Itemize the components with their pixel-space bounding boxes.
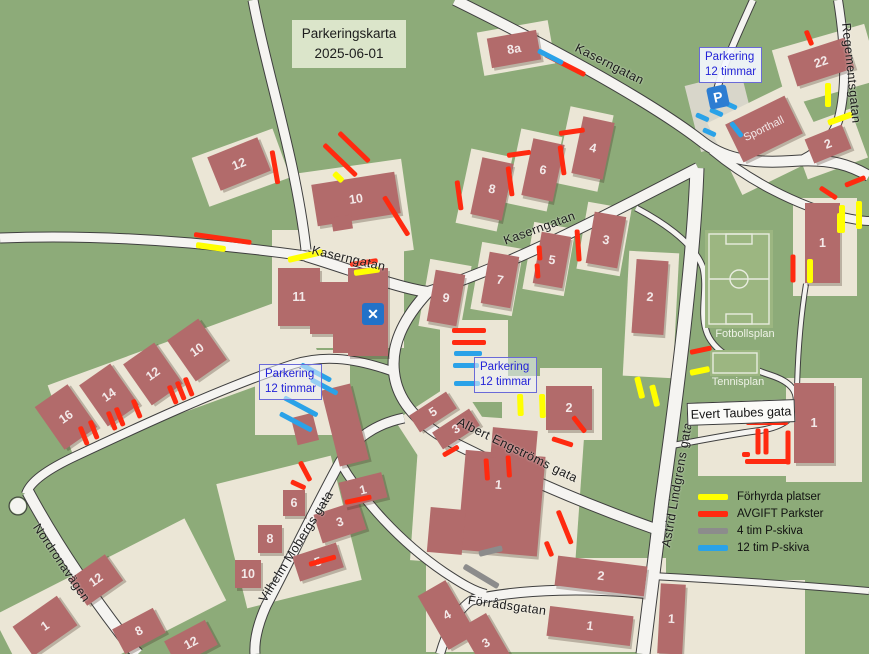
building-number: 3 [479,635,492,651]
building-number: 8a [506,41,522,57]
parking-marker-red [535,263,541,278]
building-number: 12 [230,155,248,173]
parking-marker-blue [454,351,482,356]
building-number: 4 [440,607,453,623]
map-title: Parkeringskarta 2025-06-01 [292,20,406,68]
parking-marker-yellow [856,201,862,229]
building: 6 [283,490,305,516]
building-number: 2 [822,136,834,152]
legend-row: 4 tim P-skiva [698,522,823,539]
street-label-evert-taubes-gata: Evert Taubes gata [687,399,796,426]
building-number: 1 [494,478,502,493]
building: 2 [631,259,668,335]
legend-label: 4 tim P-skiva [737,525,803,537]
building-number: 8 [267,532,274,546]
sports-fields-layer [705,230,773,376]
building-number: 6 [291,496,298,510]
parkering-line1: Parkering [265,367,316,382]
legend-label: Förhyrda platser [737,491,821,503]
legend-swatch-yellow [698,494,728,500]
building-number: 8 [487,181,497,196]
building-number: 1 [586,619,595,634]
parking-marker-yellow [517,394,524,416]
building-number: 9 [441,291,450,306]
parkering-line1: Parkering [705,50,756,65]
parkering-line2: 12 timmar [705,65,756,80]
building-number: 5 [426,404,439,420]
legend-row: AVGIFT Parkster [698,505,823,522]
building-number: 1 [811,416,818,430]
legend-swatch-gray [698,528,728,534]
building-number: 2 [566,401,573,415]
building-number: 2 [646,290,654,304]
parking-icon-glyph: P [712,88,724,106]
parking-marker-yellow [839,205,845,233]
parking-marker-yellow [825,83,831,107]
parking-marker-red [452,328,486,333]
legend-swatch-red [698,511,728,517]
parking-marker-red [756,429,761,455]
parkering-line2: 12 timmar [480,375,531,390]
building-number: 10 [348,191,364,207]
building [333,333,355,353]
building-number: 3 [335,514,346,529]
parkering-callout-west: Parkering 12 timmar [259,364,322,400]
building-number: 1 [38,618,52,633]
parking-marker-red [452,340,486,345]
building-number: 1 [668,612,676,626]
building-number: 4 [588,140,598,155]
legend-label: AVGIFT Parkster [737,508,823,520]
parking-map: 12 10 11 2 8a 8 6 4 9 7 5 3 2 2 5 3 1 6 … [0,0,869,654]
building-number: 3 [601,233,610,248]
parking-icon: P [706,84,730,110]
building-number: 11 [292,290,305,304]
building [427,507,466,555]
building-number: 8 [133,623,146,639]
parkering-line1: Parkering [480,360,531,375]
parking-marker-red [742,452,750,457]
building: 1 [794,383,834,463]
restaurant-icon-glyph: ✕ [367,306,379,323]
building [457,450,545,557]
restaurant-icon: ✕ [362,303,384,325]
parking-marker-red [745,459,789,464]
building: 1 [657,583,686,654]
map-legend: Förhyrda platser AVGIFT Parkster 4 tim P… [698,488,823,556]
building-number: 5 [547,253,556,268]
building: 2 [546,386,592,430]
evert-taubes-text: Evert Taubes gata [691,404,792,421]
building-number: 2 [597,569,606,584]
sporthall-label: Sporthall [742,114,786,144]
map-title-line2: 2025-06-01 [314,44,383,64]
building-number: 22 [812,53,830,71]
building-number: 16 [56,407,75,426]
building-number: 6 [538,162,548,177]
parking-marker-yellow [807,259,813,283]
fotbollsplan-label: Fotbollsplan [710,328,780,340]
building-number: 7 [495,273,504,288]
building-number: 12 [182,634,201,653]
map-title-line1: Parkeringskarta [302,24,397,44]
building: 8 [258,525,282,553]
parking-marker-red [791,255,796,283]
parking-marker-yellow [539,394,546,418]
parkering-callout-center: Parkering 12 timmar [474,357,537,393]
building-number: 1 [819,236,826,250]
building [310,282,350,334]
building-number: 10 [187,340,206,359]
building-number: 10 [241,567,255,581]
parkering-line2: 12 timmar [265,382,316,397]
parking-marker-red [537,245,543,260]
parking-marker-red [764,429,769,455]
parkering-callout-northeast: Parkering 12 timmar [699,47,762,83]
legend-label: 12 tim P-skiva [737,542,809,554]
building: 10 [235,560,261,588]
legend-row: Förhyrda platser [698,488,823,505]
building-number: 12 [143,364,162,383]
tennisplan-label: Tennisplan [708,376,768,388]
building-number: 12 [86,570,105,589]
legend-swatch-blue [698,545,728,551]
legend-row: 12 tim P-skiva [698,539,823,556]
building-number: 14 [99,385,118,404]
